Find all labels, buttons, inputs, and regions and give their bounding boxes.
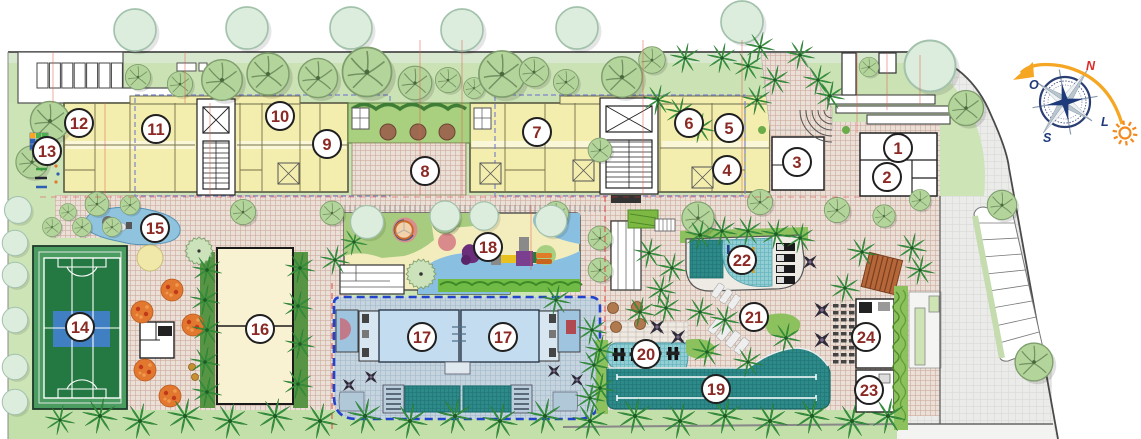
svg-text:24: 24 <box>857 329 876 347</box>
svg-text:2: 2 <box>882 169 891 187</box>
svg-text:3: 3 <box>792 154 801 172</box>
svg-text:6: 6 <box>684 115 693 133</box>
svg-text:23: 23 <box>860 382 878 400</box>
svg-text:21: 21 <box>745 309 763 327</box>
svg-text:15: 15 <box>146 220 164 238</box>
svg-text:10: 10 <box>271 108 289 126</box>
svg-text:N: N <box>1086 59 1096 73</box>
svg-text:16: 16 <box>251 321 269 339</box>
svg-text:1: 1 <box>893 140 902 158</box>
svg-text:22: 22 <box>733 252 751 270</box>
svg-text:12: 12 <box>70 115 88 133</box>
svg-text:13: 13 <box>38 143 56 161</box>
svg-text:18: 18 <box>479 239 497 257</box>
svg-text:5: 5 <box>724 120 733 138</box>
svg-text:11: 11 <box>147 121 164 139</box>
svg-text:8: 8 <box>420 163 429 181</box>
svg-text:7: 7 <box>532 124 541 142</box>
svg-text:L: L <box>1101 115 1109 129</box>
svg-text:17: 17 <box>494 329 512 347</box>
svg-text:14: 14 <box>71 319 90 337</box>
svg-text:O: O <box>1029 78 1039 92</box>
svg-text:19: 19 <box>707 381 725 399</box>
svg-text:17: 17 <box>413 329 431 347</box>
svg-text:20: 20 <box>637 346 655 364</box>
svg-text:4: 4 <box>722 162 732 180</box>
svg-text:S: S <box>1043 131 1052 145</box>
svg-text:9: 9 <box>322 136 331 154</box>
